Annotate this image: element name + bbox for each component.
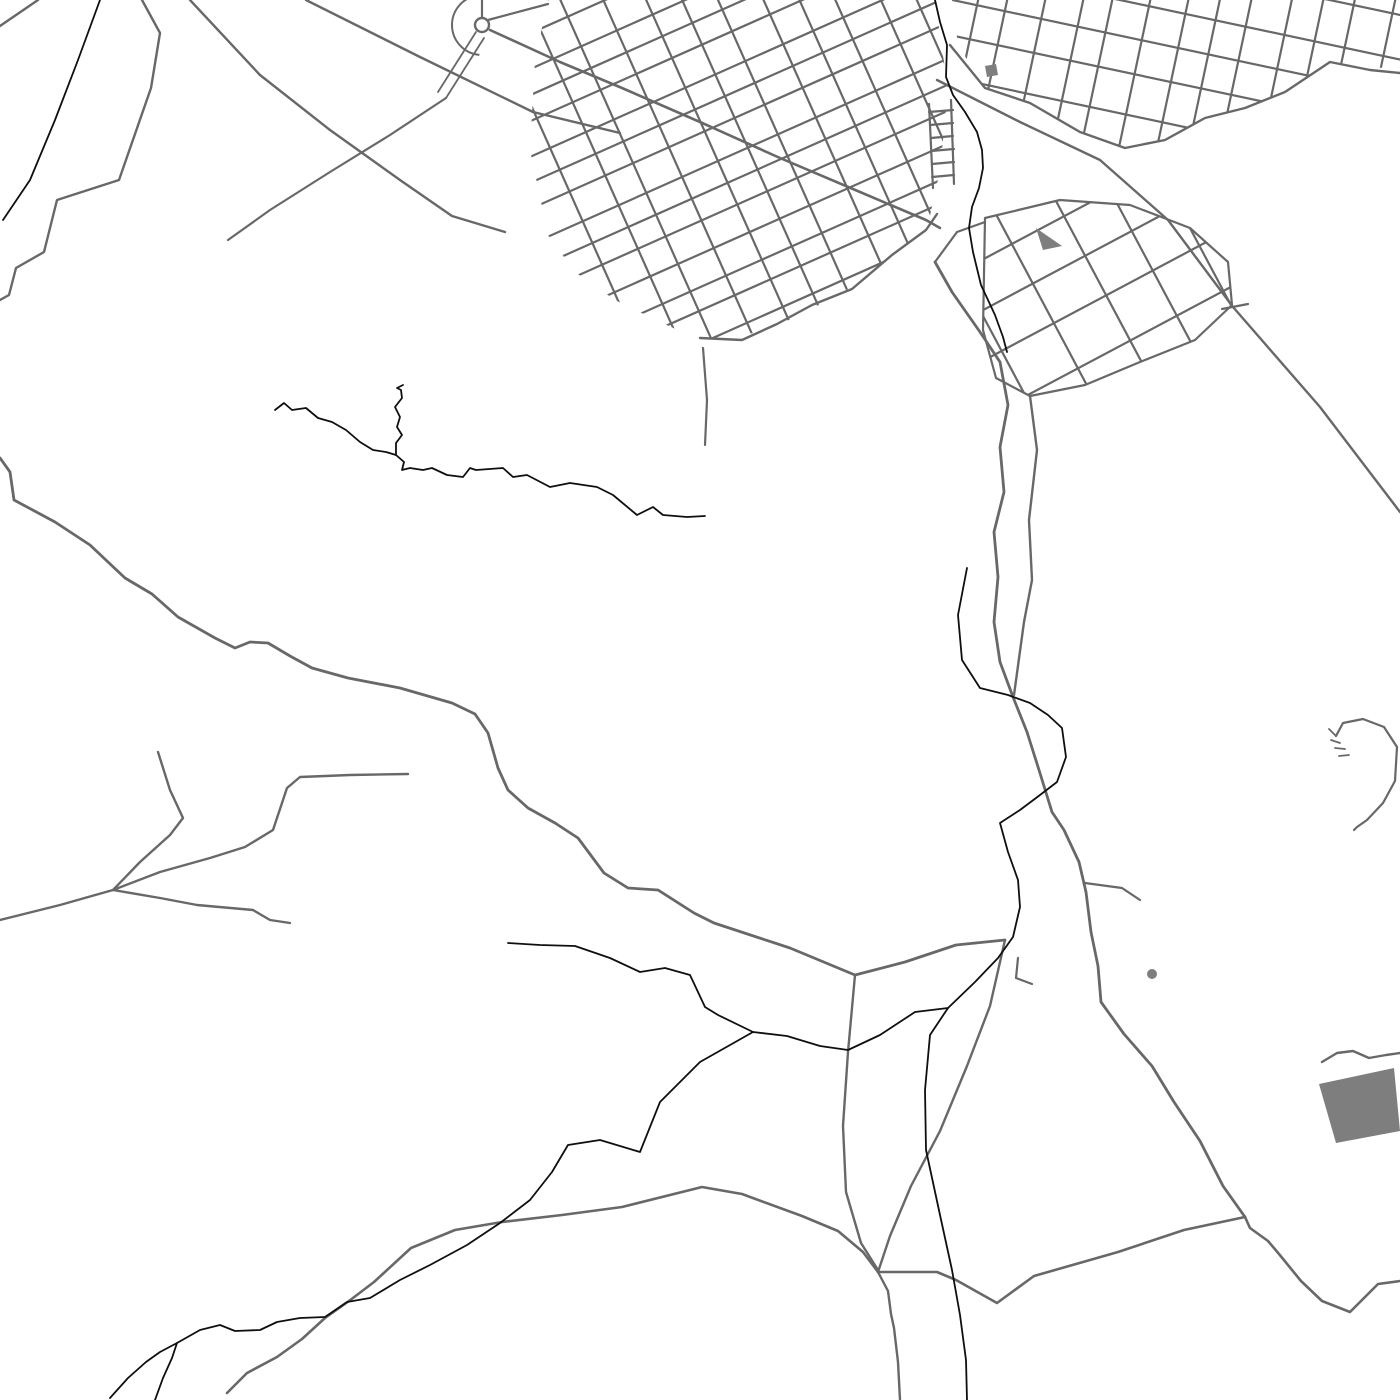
- map-canvas[interactable]: [0, 0, 1400, 1400]
- northeast-settlement-grid: [642, 0, 1400, 620]
- southwest-tributary: [110, 1032, 753, 1398]
- dead-end-stem: [703, 348, 707, 445]
- west-junction-southwest-arm: [0, 890, 113, 920]
- south-exit-road: [878, 1272, 900, 1400]
- roads-layer: [0, 0, 1400, 1400]
- northwest-s-road: [0, 0, 160, 300]
- main-south-artery: [935, 262, 1245, 1217]
- roundabout: [452, 0, 489, 55]
- middle-squiggle-branch: [395, 385, 403, 455]
- southwest-long-road: [227, 1187, 878, 1393]
- quarry-wavy-road: [1322, 1051, 1400, 1062]
- long-straight-diagonal: [937, 80, 1400, 512]
- city-south-edge-road: [700, 214, 937, 340]
- small-building-block: [985, 64, 998, 77]
- northwest-wadi: [3, 0, 100, 220]
- streams-layer: [3, 0, 1066, 1400]
- middle-squiggle-stream: [275, 403, 705, 517]
- sliver-south-road: [843, 975, 878, 1270]
- west-junction-northeast-arm: [113, 774, 408, 890]
- east-tree-road: [1336, 719, 1397, 830]
- east-stub-road: [1085, 883, 1140, 900]
- northwest-diagonal-b: [190, 0, 505, 232]
- tree-road-stubs: [1329, 729, 1349, 756]
- bottom-connector-road: [878, 1217, 1245, 1303]
- street-grids-layer: [166, 0, 1400, 893]
- corner-stub-road: [0, 0, 38, 26]
- cluster-link-road: [935, 222, 985, 262]
- dual-carriageway-b: [446, 38, 484, 98]
- southwest-avenue: [228, 98, 446, 240]
- central-avenue: [490, 30, 940, 228]
- west-tributary: [508, 943, 948, 1050]
- roundabout-spoke-northeast: [488, 4, 548, 20]
- west-junction-east-arm: [113, 890, 290, 923]
- arrow-marker: [1036, 228, 1062, 250]
- southwest-tributary-fork: [155, 1343, 177, 1400]
- parallel-south-road: [1014, 396, 1037, 695]
- junction-hook-stub: [1016, 958, 1032, 984]
- quarry-lot: [1319, 1068, 1400, 1143]
- building-dot: [1147, 969, 1157, 979]
- southeast-branch: [1245, 1217, 1400, 1312]
- map-viewport[interactable]: [0, 0, 1400, 1400]
